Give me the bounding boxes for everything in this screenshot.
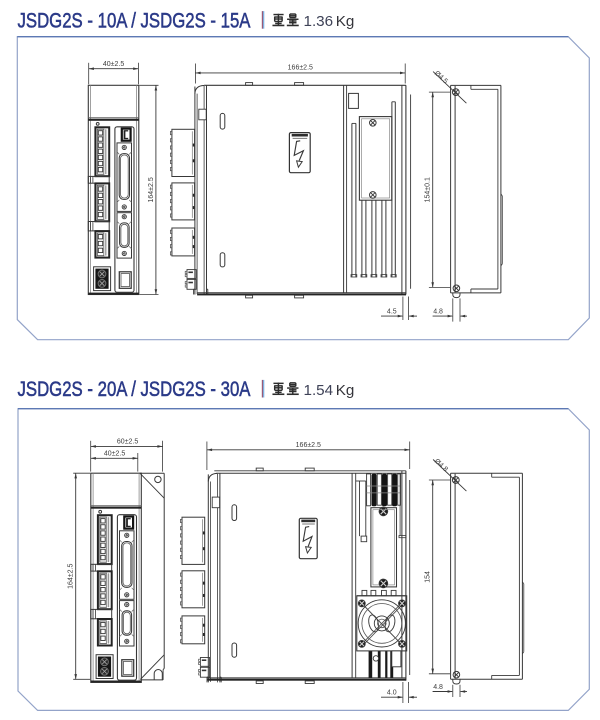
- svg-text:Ø4.5: Ø4.5: [433, 70, 449, 86]
- svg-text:4.8: 4.8: [433, 684, 443, 691]
- svg-text:166±2.5: 166±2.5: [296, 442, 321, 449]
- svg-text:60±2.5: 60±2.5: [117, 438, 138, 445]
- svg-text:154: 154: [425, 571, 432, 583]
- svg-text:Ø4.8: Ø4.8: [433, 458, 449, 474]
- svg-text:Kg: Kg: [336, 382, 355, 399]
- svg-text:164±2.5: 164±2.5: [68, 564, 75, 589]
- svg-text:40±2.5: 40±2.5: [104, 450, 125, 457]
- svg-text:154±0.1: 154±0.1: [425, 177, 432, 202]
- svg-text:Kg: Kg: [336, 13, 355, 30]
- svg-text:4.0: 4.0: [387, 690, 397, 697]
- svg-text:JSDG2S - 20A / JSDG2S - 30A: JSDG2S - 20A / JSDG2S - 30A: [18, 378, 251, 401]
- svg-text:1.54: 1.54: [304, 382, 334, 399]
- svg-text:40±2.5: 40±2.5: [103, 61, 124, 68]
- svg-text:166±2.5: 166±2.5: [288, 65, 313, 72]
- svg-text:4.8: 4.8: [433, 309, 443, 316]
- svg-text:JSDG2S - 10A / JSDG2S - 15A: JSDG2S - 10A / JSDG2S - 15A: [18, 9, 251, 32]
- svg-text:1.36: 1.36: [304, 13, 334, 30]
- svg-text:164±2.5: 164±2.5: [148, 177, 155, 202]
- svg-text:4.5: 4.5: [387, 308, 397, 315]
